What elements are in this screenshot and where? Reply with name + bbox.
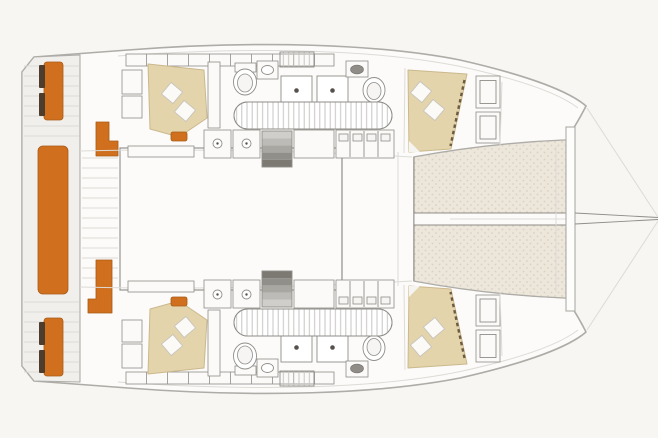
helm-seat-lower-arm bbox=[39, 322, 45, 345]
crossbeam bbox=[566, 127, 575, 311]
wardrobe-tall bbox=[208, 62, 220, 128]
sink-bowl bbox=[351, 65, 364, 74]
transom-bench bbox=[38, 146, 68, 294]
floor-plan-canvas bbox=[0, 0, 658, 438]
sink-drain bbox=[294, 88, 299, 93]
shower-grate bbox=[280, 52, 314, 67]
wardrobe bbox=[122, 96, 142, 118]
washbasin bbox=[262, 66, 274, 75]
catamaran-floor-plan bbox=[0, 0, 658, 438]
trampoline bbox=[414, 140, 566, 298]
nightstand bbox=[171, 132, 187, 141]
helm-seat-upper bbox=[44, 62, 63, 120]
companionway-steps bbox=[262, 131, 292, 167]
helm-seat-lower bbox=[44, 318, 63, 376]
helm-seat-lower-arm bbox=[39, 350, 45, 373]
helm-seat-upper-arm bbox=[39, 93, 45, 116]
helm-seat-upper-arm bbox=[39, 65, 45, 88]
sink-drain bbox=[330, 88, 335, 93]
cabinet bbox=[294, 130, 334, 158]
wardrobe bbox=[122, 70, 142, 94]
dresser bbox=[128, 146, 194, 157]
hull-corridor bbox=[234, 102, 392, 129]
